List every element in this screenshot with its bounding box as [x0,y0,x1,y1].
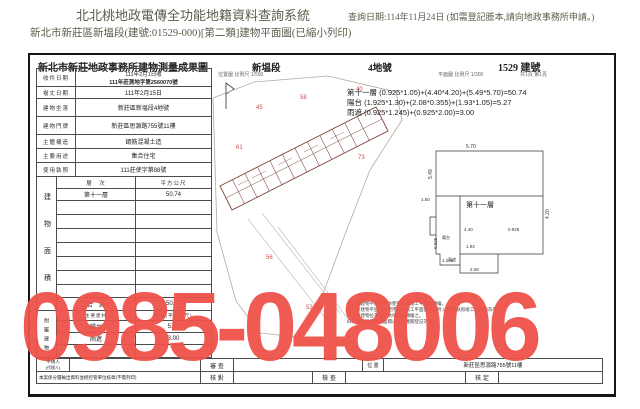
area-formulas: 第十一層 (0.925*1.05)+(4.40*4.20)+(5.49*5.70… [347,88,527,118]
unit-detail-plan [430,151,543,273]
formula-balcony: 陽台 (1.925*1.30)+(2.08*0.355)+(1.93*1.05)… [347,98,527,108]
lot-number: 45 [256,105,263,111]
dim-w2: 1.93 [466,244,475,249]
unit-partition-lines [233,117,370,204]
page: 北北桃地政電傳全功能地籍資料查詢系統 新北市新莊區新塭段(建號:01529-00… [0,0,640,409]
dim-left: 5.49 [428,169,434,179]
dim-right: 4.20 [545,209,551,219]
info-value-license: 111莊使字第88號 [75,162,212,177]
dim-s1: 0.925 [433,237,438,249]
system-title: 北北桃地政電傳全功能地籍資料查詢系統 [76,5,310,24]
dim-w1: 4.40 [464,227,473,232]
query-date: 查詢日期:114年11月24日 (如需登記謄本,請向地政事務所申請。) [348,10,594,23]
info-value-door-plate: 新莊區思源路755號11樓 [75,116,212,135]
info-label-structure: 主體構造 [36,134,76,149]
unit-floor-label: 第十一層 [466,200,494,209]
dim-top: 5.70 [466,144,476,150]
lot-number: 61 [236,145,243,151]
table-gridline [56,214,212,215]
dim-s3: 1.50 [421,197,430,202]
info-value-structure: 鋼筋混凝土造 [75,134,212,149]
balcony-label: 陽台 [442,234,450,240]
info-value-receive-date: 111年2月1日收 111年莊測地字第2560070號 [75,68,212,87]
table-gridline [56,270,212,271]
info-label-door-plate: 建物門牌 [36,116,76,135]
table-gridline [56,256,212,257]
lot-number: 56 [266,255,273,261]
info-value-usage: 集合住宅 [75,148,212,163]
info-value-building-site: 新莊區新塭段4地號 [75,98,212,117]
lot-number: 58 [300,95,307,101]
info-label-building-site: 建物坐落 [36,98,76,117]
dim-s2: 0.925 [508,227,520,232]
info-label-usage: 主要用途 [36,148,76,163]
room-detail-lines [238,132,344,185]
info-label-receive-date: 收件日期 [36,68,76,87]
phone-number-watermark: 0985-048006 [20,278,640,375]
north-arrow-icon [226,83,234,109]
document-subtitle: 新北市新莊區新塭段(建號:01529-000)[第二類]建物平面圖(已縮小列印) [30,25,351,40]
info-label-license: 使用執照 [36,162,76,177]
table-gridline [56,242,212,243]
lot-number: 73 [358,155,365,161]
formula-canopy: 雨遮 (0.925*1.245)+(0.925*2.00)=3.00 [347,108,527,118]
canopy-label: 雨遮 [448,256,456,262]
formula-floor: 第十一層 (0.925*1.05)+(4.40*4.20)+(5.49*5.70… [347,88,527,98]
table-gridline [56,228,212,229]
